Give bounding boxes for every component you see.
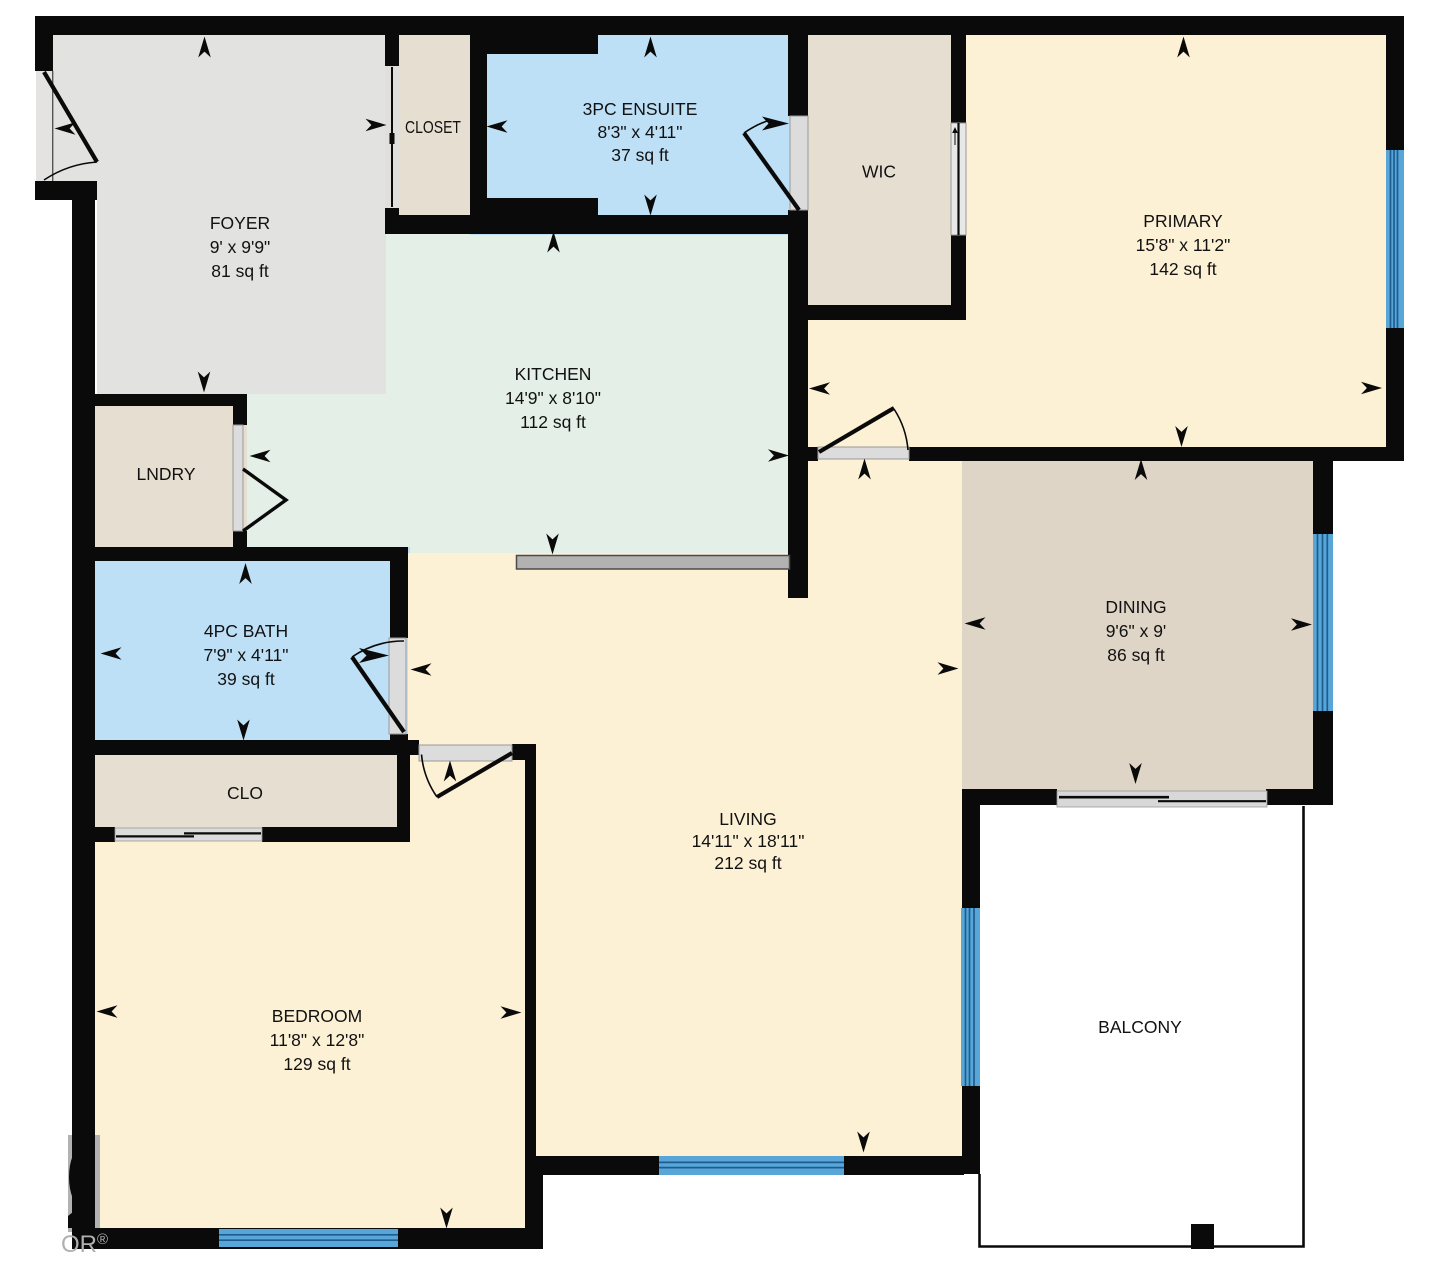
svg-text:9'6" x 9': 9'6" x 9' [1106,621,1167,641]
svg-text:8'3" x 4'11": 8'3" x 4'11" [598,122,683,142]
svg-text:15'8" x 11'2": 15'8" x 11'2" [1136,235,1231,255]
svg-text:142 sq ft: 142 sq ft [1149,259,1216,279]
svg-text:3PC ENSUITE: 3PC ENSUITE [583,99,698,119]
svg-text:PRIMARY: PRIMARY [1143,211,1223,231]
svg-text:CLO: CLO [227,783,263,803]
svg-text:212 sq ft: 212 sq ft [714,853,781,873]
svg-text:14'11" x 18'11": 14'11" x 18'11" [692,831,805,851]
svg-text:4PC BATH: 4PC BATH [204,621,288,641]
svg-text:81 sq ft: 81 sq ft [211,261,269,281]
svg-text:KITCHEN: KITCHEN [515,364,592,384]
svg-text:14'9" x 8'10": 14'9" x 8'10" [505,388,601,408]
svg-text:7'9" x 4'11": 7'9" x 4'11" [204,645,289,665]
svg-text:37 sq ft: 37 sq ft [611,145,669,165]
svg-text:BALCONY: BALCONY [1098,1017,1182,1037]
svg-text:9' x 9'9": 9' x 9'9" [210,237,271,257]
svg-text:112 sq ft: 112 sq ft [520,412,586,432]
svg-text:BEDROOM: BEDROOM [272,1006,362,1026]
svg-text:DINING: DINING [1105,597,1166,617]
svg-text:FOYER: FOYER [210,213,270,233]
svg-text:86 sq ft: 86 sq ft [1107,645,1165,665]
svg-text:129 sq ft: 129 sq ft [283,1054,350,1074]
svg-text:WIC: WIC [862,162,896,182]
svg-text:LIVING: LIVING [719,809,776,829]
svg-text:39 sq ft: 39 sq ft [217,669,275,689]
svg-text:CLOSET: CLOSET [405,119,461,138]
svg-text:OR®: OR® [61,1231,108,1258]
svg-text:LNDRY: LNDRY [136,464,195,484]
svg-text:11'8" x 12'8": 11'8" x 12'8" [270,1030,365,1050]
